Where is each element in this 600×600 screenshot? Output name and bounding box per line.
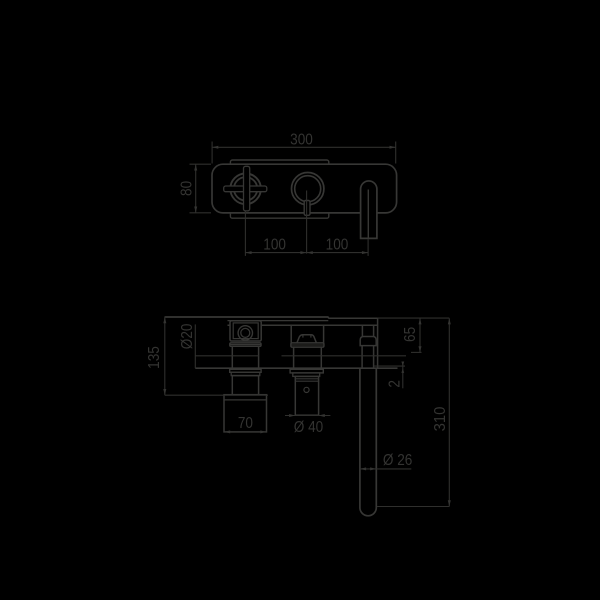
svg-text:Ø20: Ø20 xyxy=(179,324,196,350)
svg-text:65: 65 xyxy=(402,327,419,342)
svg-text:80: 80 xyxy=(179,181,196,196)
svg-text:300: 300 xyxy=(290,131,313,148)
svg-text:Ø 26: Ø 26 xyxy=(383,452,412,469)
svg-text:310: 310 xyxy=(431,407,449,432)
svg-text:135: 135 xyxy=(146,346,163,369)
svg-text:100: 100 xyxy=(263,236,286,253)
svg-text:2: 2 xyxy=(386,380,403,388)
svg-text:70: 70 xyxy=(238,415,253,432)
svg-text:Ø 40: Ø 40 xyxy=(294,419,323,436)
svg-text:100: 100 xyxy=(326,236,349,253)
